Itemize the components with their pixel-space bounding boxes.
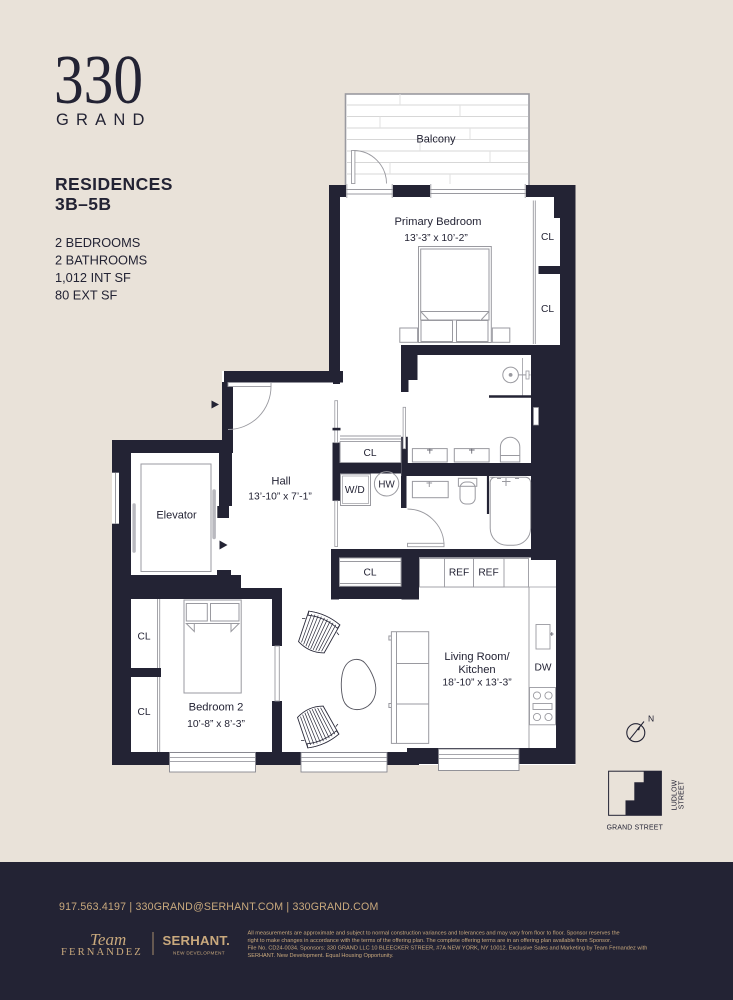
svg-text:N: N (648, 714, 654, 724)
svg-text:RESIDENCES: RESIDENCES (55, 174, 173, 194)
svg-text:3B–5B: 3B–5B (55, 194, 111, 214)
svg-text:All measurements are approxima: All measurements are approximate and sub… (248, 931, 620, 937)
svg-text:Living Room/: Living Room/ (444, 651, 510, 663)
svg-text:1,012 INT SF: 1,012 INT SF (55, 270, 131, 285)
svg-text:CL: CL (137, 707, 150, 718)
svg-text:SERHANT.: SERHANT. (163, 933, 231, 948)
svg-text:FERNANDEZ: FERNANDEZ (61, 947, 143, 958)
svg-text:right to make changes in accor: right to make changes in accordance with… (248, 938, 612, 944)
svg-text:10’-8” x 8’-3”: 10’-8” x 8’-3” (187, 719, 245, 730)
svg-text:Bedroom 2: Bedroom 2 (189, 702, 244, 714)
svg-text:Hall: Hall (271, 476, 290, 488)
svg-text:Kitchen: Kitchen (458, 664, 495, 676)
svg-text:Balcony: Balcony (416, 134, 456, 146)
svg-text:HW: HW (378, 479, 395, 490)
svg-text:CL: CL (541, 304, 554, 315)
svg-text:13’-10” x 7’-1”: 13’-10” x 7’-1” (248, 492, 312, 503)
svg-text:2 BATHROOMS: 2 BATHROOMS (55, 253, 147, 268)
svg-text:2 BEDROOMS: 2 BEDROOMS (55, 235, 140, 250)
svg-text:CL: CL (137, 632, 150, 643)
svg-text:18’-10” x 13’-3”: 18’-10” x 13’-3” (442, 677, 512, 688)
svg-text:GRAND: GRAND (56, 111, 152, 129)
svg-text:LUDLOW: LUDLOW (672, 779, 679, 810)
svg-text:Primary Bedroom: Primary Bedroom (394, 216, 481, 228)
svg-text:DW: DW (535, 663, 552, 674)
svg-text:80 EXT SF: 80 EXT SF (55, 288, 118, 303)
svg-text:CL: CL (363, 568, 376, 579)
svg-text:GRAND STREET: GRAND STREET (607, 825, 664, 832)
svg-text:STREET: STREET (679, 780, 686, 809)
svg-text:CL: CL (541, 232, 554, 243)
svg-text:NEW DEVELOPMENT: NEW DEVELOPMENT (173, 951, 225, 956)
svg-text:330: 330 (54, 42, 143, 119)
svg-text:File No. CD24-0034. Sponsors:: File No. CD24-0034. Sponsors: 330 GRAND … (248, 946, 648, 952)
svg-text:W/D: W/D (345, 485, 365, 496)
svg-text:CL: CL (363, 448, 376, 459)
svg-text:REF: REF (478, 568, 498, 579)
svg-text:Elevator: Elevator (156, 510, 197, 522)
svg-text:917.563.4197 | 330GRAND@SERHAN: 917.563.4197 | 330GRAND@SERHANT.COM | 33… (59, 901, 378, 913)
svg-text:REF: REF (449, 568, 469, 579)
svg-text:13’-3” x 10’-2”: 13’-3” x 10’-2” (404, 233, 468, 244)
svg-text:SERHANT. New Development. Equa: SERHANT. New Development. Equal Housing … (248, 953, 394, 959)
